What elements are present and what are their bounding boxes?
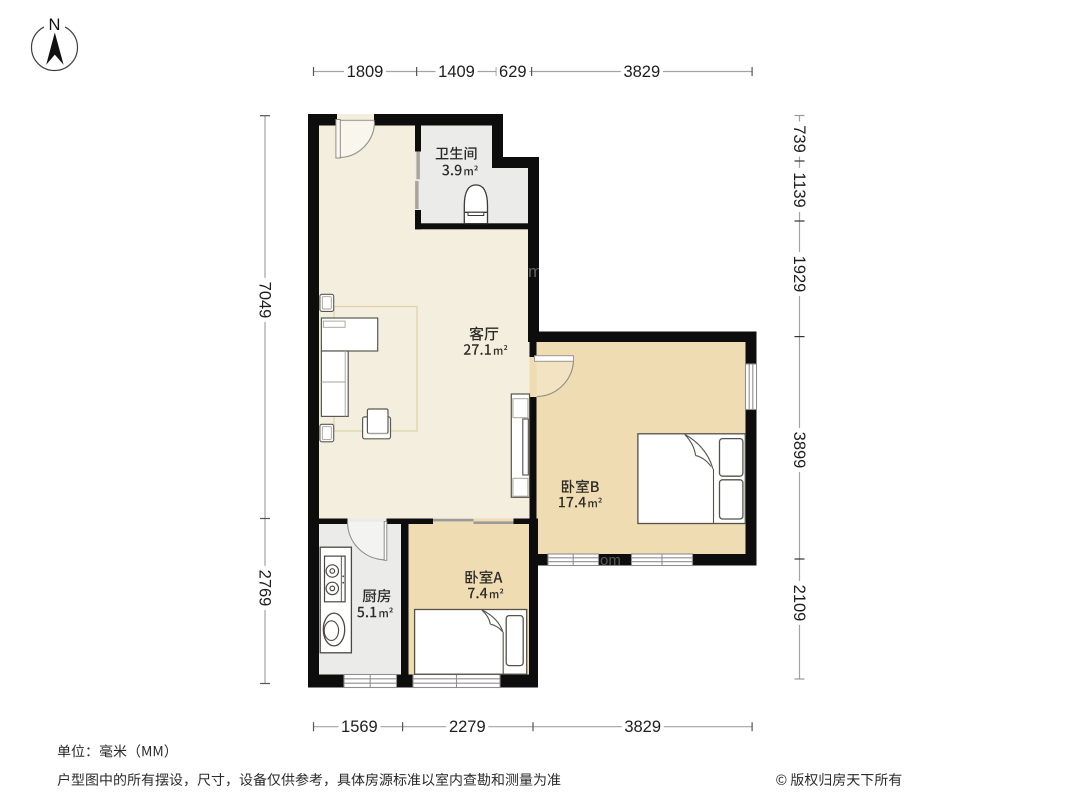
svg-text:1569: 1569 [341, 718, 378, 736]
svg-text:N: N [49, 16, 61, 34]
svg-text:3829: 3829 [624, 718, 661, 736]
svg-text:om: om [600, 552, 621, 569]
svg-text:m: m [528, 262, 542, 281]
svg-text:7049: 7049 [256, 282, 274, 319]
svg-text:1409: 1409 [438, 63, 475, 81]
svg-text:1809: 1809 [347, 63, 384, 81]
svg-text:739: 739 [790, 125, 808, 153]
svg-text:2279: 2279 [449, 718, 486, 736]
svg-text:1139: 1139 [790, 172, 808, 207]
svg-text:1929: 1929 [790, 256, 808, 293]
svg-text:2109: 2109 [790, 585, 808, 622]
svg-text:3829: 3829 [623, 63, 660, 81]
svg-text:2769: 2769 [256, 570, 274, 607]
svg-text:3899: 3899 [790, 432, 808, 469]
svg-text:629: 629 [499, 63, 527, 81]
